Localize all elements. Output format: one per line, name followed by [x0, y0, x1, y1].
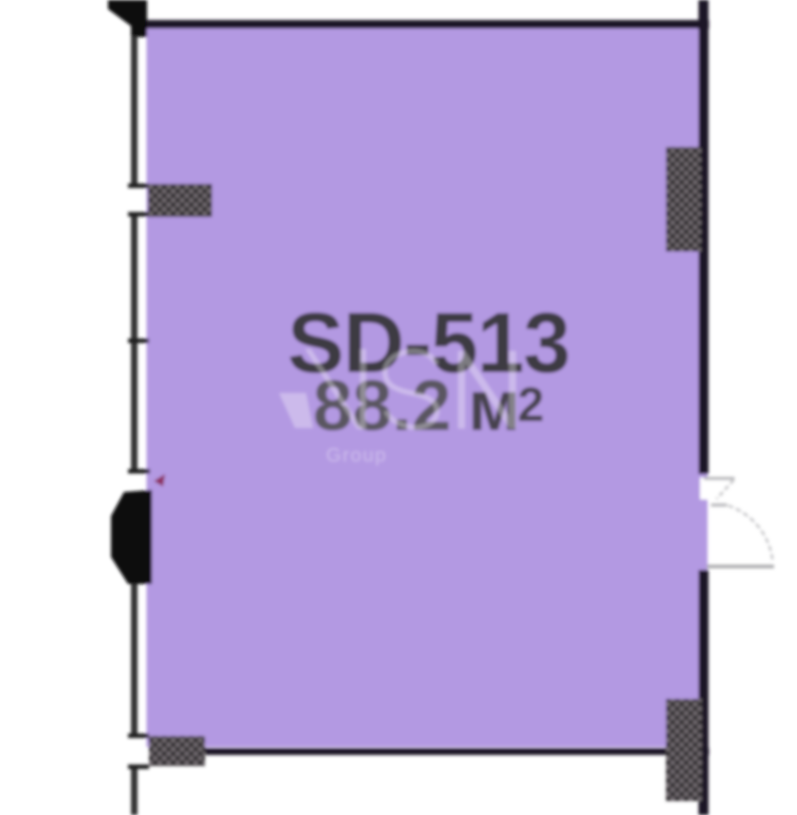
svg-text:Group: Group — [326, 445, 387, 467]
